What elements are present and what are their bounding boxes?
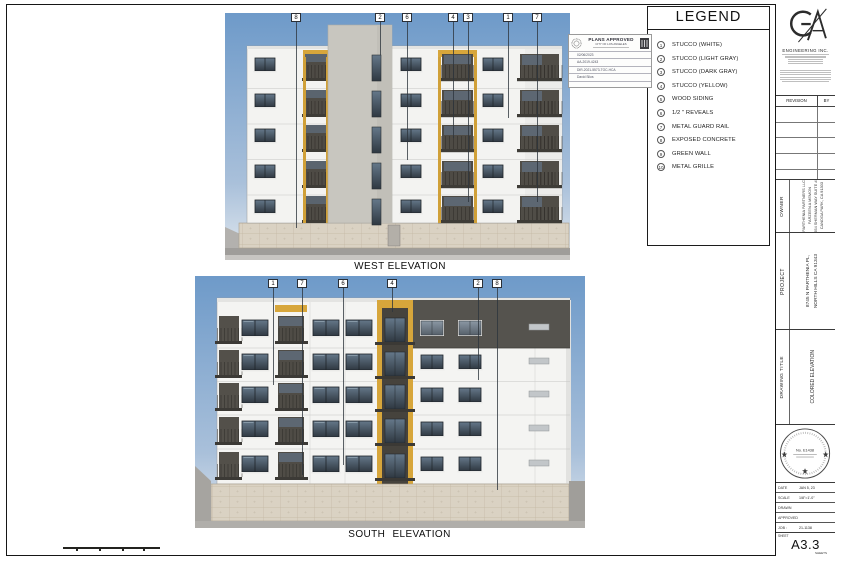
- callout-west-5: 1: [503, 13, 513, 22]
- legend-item-label: 1/2 " REVEALS: [672, 110, 713, 116]
- legend-item-label: METAL GUARD RAIL: [672, 124, 729, 130]
- firm-name: ENGINEERING INC.: [776, 48, 835, 53]
- legend-item-label: WOOD SIDING: [672, 96, 713, 102]
- info-label: SCALE: [776, 493, 799, 502]
- engineer-stamp-section: No. E1438: [776, 425, 835, 483]
- info-row: JOB : 21-1138: [776, 523, 835, 533]
- city-seal-icon: [571, 38, 582, 49]
- sheet-label: SHEET: [778, 534, 789, 538]
- callout-west-2: 6: [402, 13, 412, 22]
- drawing-sheet: 8 2 6 4 3 1 7 1 7 6 4 2 8 WEST ELEVATION…: [0, 0, 841, 563]
- info-value: JAN 5, 23: [799, 483, 835, 492]
- leader-line: [302, 288, 303, 475]
- project-line: 8745 N PARTHENIA PL,: [806, 255, 811, 307]
- drawing-title-label: DRAWING TITLE: [780, 356, 785, 399]
- entry-door: [388, 225, 400, 246]
- revision-row: [776, 170, 835, 180]
- callout-south-1: 7: [297, 279, 307, 288]
- legend-item: 7METAL GUARD RAIL: [657, 123, 760, 131]
- info-label: JOB :: [776, 523, 799, 532]
- west-elevation-rendering: [225, 13, 570, 260]
- info-label: DRAWN: [776, 503, 799, 512]
- legend-item: 5WOOD SIDING: [657, 95, 760, 103]
- ladbs-emblem-icon: [640, 38, 649, 49]
- callout-west-1: 2: [375, 13, 385, 22]
- revision-row: [776, 154, 835, 170]
- legend-item: 61/2 " REVEALS: [657, 109, 760, 117]
- owner-line: PARTHENIA PARTNERS LLC: [801, 180, 806, 232]
- leader-line: [343, 288, 344, 465]
- drawing-title-section: DRAWING TITLE COLORED ELEVATION: [776, 330, 835, 425]
- approval-field: [569, 81, 651, 88]
- legend-item-label: STUCCO (LIGHT GRAY): [672, 56, 738, 62]
- info-value: 21-1138: [799, 523, 835, 532]
- concrete-base-wall: [239, 223, 569, 248]
- plans-approved-stamp: PLANS APPROVED CITY OF LOS ANGELES 02/06…: [568, 34, 652, 88]
- revision-table: REVISION BY: [776, 96, 835, 180]
- info-row: DRAWN: [776, 503, 835, 513]
- legend-item: 2STUCCO (LIGHT GRAY): [657, 55, 760, 63]
- owner-line: FARZEEN A MEMON: [807, 187, 812, 224]
- legend-item: 8EXPOSED CONCRETE: [657, 136, 760, 144]
- leader-line: [537, 22, 538, 202]
- west-elevation-title: WEST ELEVATION: [330, 261, 470, 272]
- approval-field: David Silva: [569, 73, 651, 80]
- legend-number-bubble: 3: [657, 68, 665, 76]
- project-label: PROJECT: [780, 268, 786, 295]
- owner-label: OWNER: [780, 196, 785, 217]
- legend-item-label: GREEN WALL: [672, 151, 711, 157]
- sheet-number-box: SHEET A3.3 SHEETS: [776, 533, 835, 556]
- project-section: PROJECT 8745 N PARTHENIA PL, NORTH HILLS…: [776, 233, 835, 330]
- callout-south-0: 1: [268, 279, 278, 288]
- legend-item: 1STUCCO (WHITE): [657, 41, 760, 49]
- owner-section: OWNER PARTHENIA PARTNERS LLC FARZEEN A M…: [776, 180, 835, 233]
- south-elevation-title: SOUTH ELEVATION: [312, 529, 487, 540]
- info-row: DATE JAN 5, 23: [776, 483, 835, 493]
- by-col-header: BY: [818, 96, 835, 106]
- legend-item: 3STUCCO (DARK GRAY): [657, 68, 760, 76]
- leader-line: [508, 22, 509, 118]
- stamp-license-no: No. E1438: [795, 449, 813, 453]
- legend-number-bubble: 5: [657, 95, 665, 103]
- callout-west-0: 8: [291, 13, 301, 22]
- leader-line: [392, 288, 393, 312]
- approval-field: AA-2019-4243: [569, 58, 651, 65]
- info-row: APPROVED: [776, 513, 835, 523]
- revision-row: [776, 123, 835, 139]
- legend-number-bubble: 9: [657, 150, 665, 158]
- revision-row: [776, 138, 835, 154]
- info-label: APPROVED: [776, 513, 799, 522]
- scan-artifact: [99, 548, 101, 551]
- callout-south-2: 6: [338, 279, 348, 288]
- leader-line: [468, 22, 469, 202]
- legend-number-bubble: 10: [657, 163, 665, 171]
- title-block: ENGINEERING INC. REVISION BY OWNER PARTH…: [775, 4, 835, 556]
- firm-section: ENGINEERING INC.: [776, 4, 835, 96]
- leader-line: [497, 288, 498, 490]
- approval-city: CITY OF LOS ANGELES: [582, 42, 640, 46]
- legend-item-label: STUCCO (YELLOW): [672, 83, 728, 89]
- balcony-column-7: [275, 305, 308, 480]
- callout-west-3: 4: [448, 13, 458, 22]
- balcony-column-middle: [438, 54, 477, 223]
- legend-title: LEGEND: [648, 7, 769, 30]
- legend-item: 9GREEN WALL: [657, 150, 760, 158]
- leader-line: [296, 22, 297, 228]
- scan-artifact: [76, 548, 78, 551]
- legend-item-label: METAL GRILLE: [672, 164, 714, 170]
- owner-line: 21654 SHERMAN WAY SUITE #203: [813, 180, 818, 233]
- owner-line: CANOGA PARK, CA 91303: [819, 182, 824, 229]
- revision-row: [776, 107, 835, 123]
- approval-field: DIR-2021-5573-TOC-HCA: [569, 66, 651, 73]
- legend-panel: LEGEND 1STUCCO (WHITE) 2STUCCO (LIGHT GR…: [647, 6, 770, 246]
- info-label: DATE: [776, 483, 799, 492]
- legend-item-label: STUCCO (WHITE): [672, 42, 722, 48]
- sheets-note: SHEETS: [815, 551, 827, 555]
- balcony-column-left: [302, 54, 330, 223]
- legend-number-bubble: 4: [657, 82, 665, 90]
- south-elevation-rendering: [195, 276, 585, 528]
- callout-south-4: 2: [473, 279, 483, 288]
- leader-line: [380, 22, 381, 55]
- concrete-base-wall: [211, 484, 569, 521]
- callout-south-5: 8: [492, 279, 502, 288]
- info-value: [799, 513, 835, 522]
- legend-item: 4STUCCO (YELLOW): [657, 82, 760, 90]
- info-value: [799, 503, 835, 512]
- scan-artifact: [143, 548, 145, 551]
- left-edge-balconies: [215, 316, 242, 480]
- legend-number-bubble: 6: [657, 109, 665, 117]
- yellow-stair-column: [375, 300, 415, 484]
- legend-number-bubble: 7: [657, 123, 665, 131]
- balcony-column-right: [517, 54, 562, 223]
- ga-logo: [783, 7, 829, 43]
- leader-line: [453, 22, 454, 138]
- project-line: NORTH HILLS CA 91343: [814, 254, 819, 308]
- info-row: SCALE 1/8"=1'-0": [776, 493, 835, 503]
- legend-item-label: EXPOSED CONCRETE: [672, 137, 736, 143]
- legend-number-bubble: 8: [657, 136, 665, 144]
- leader-line: [407, 22, 408, 160]
- legend-number-bubble: 2: [657, 55, 665, 63]
- revision-col-header: REVISION: [776, 96, 818, 106]
- approval-field: 02/06/2023: [569, 51, 651, 58]
- elevator-tower: [328, 25, 392, 225]
- legend-number-bubble: 1: [657, 41, 665, 49]
- info-value: 1/8"=1'-0": [799, 493, 835, 502]
- info-rows: DATE JAN 5, 23 SCALE 1/8"=1'-0" DRAWN AP…: [776, 483, 835, 533]
- callout-south-3: 4: [387, 279, 397, 288]
- leader-line: [273, 288, 274, 385]
- leader-line: [478, 288, 479, 380]
- callout-west-4: 3: [463, 13, 473, 22]
- engineer-stamp-icon: No. E1438: [777, 425, 835, 482]
- legend-item: 10METAL GRILLE: [657, 163, 760, 171]
- legend-item-label: STUCCO (DARK GRAY): [672, 69, 737, 75]
- callout-west-6: 7: [532, 13, 542, 22]
- scan-artifact: [122, 548, 124, 551]
- drawing-title-value: COLORED ELEVATION: [810, 350, 816, 403]
